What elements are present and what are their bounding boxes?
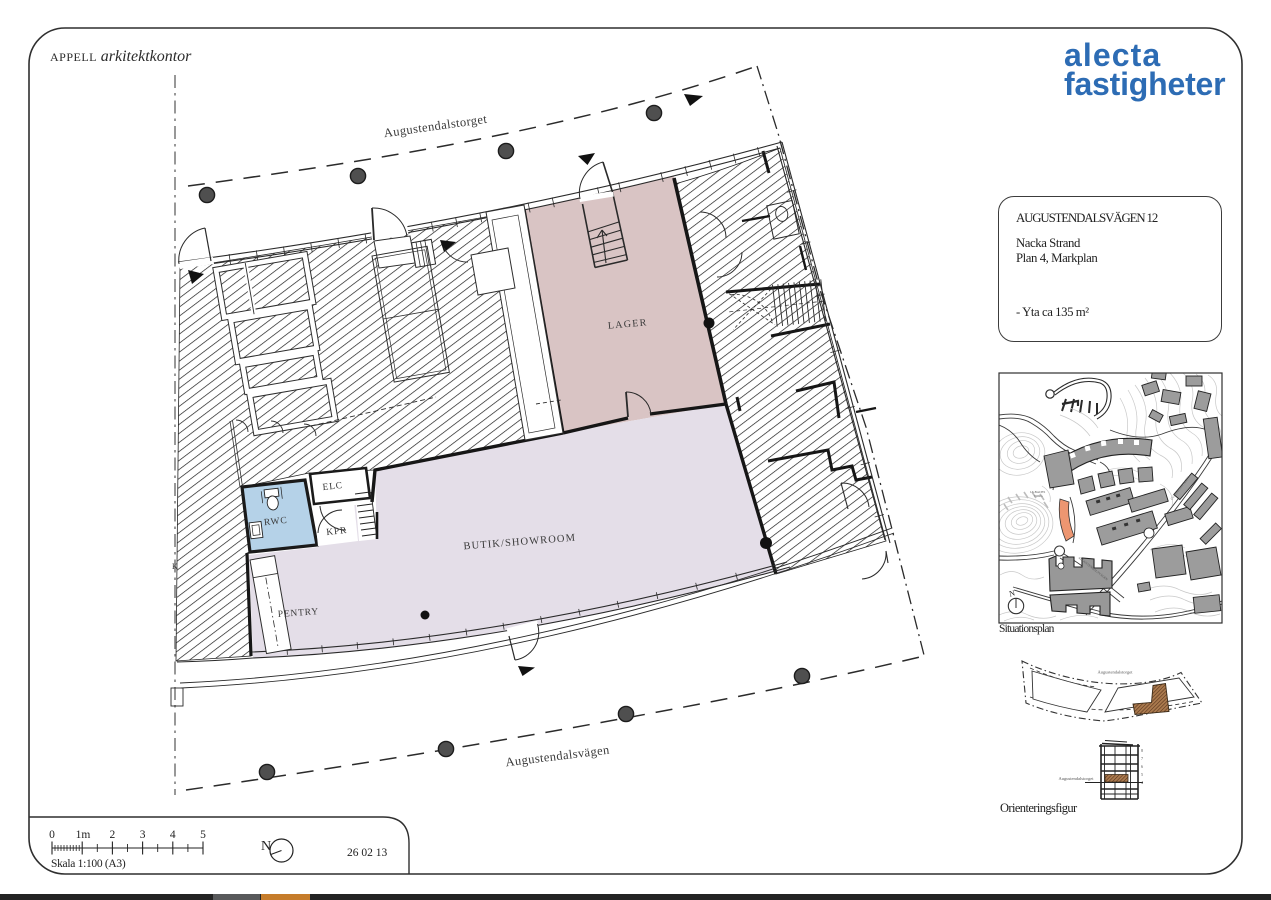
svg-text:4: 4 [170, 829, 176, 841]
svg-text:8: 8 [1141, 748, 1143, 753]
svg-text:6: 6 [1141, 764, 1143, 769]
svg-text:0: 0 [49, 829, 55, 841]
svg-text:3: 3 [140, 829, 146, 841]
svg-text:ELC: ELC [322, 481, 343, 493]
svg-text:2: 2 [110, 829, 116, 841]
svg-text:Augustendalstorget: Augustendalstorget [1059, 776, 1095, 781]
svg-text:Augustendalstorget: Augustendalstorget [1098, 670, 1134, 675]
svg-text:Augustendalsvägen: Augustendalsvägen [505, 743, 611, 770]
svg-text:7: 7 [1141, 756, 1143, 761]
svg-text:5: 5 [1141, 772, 1143, 777]
svg-text:K: K [172, 562, 178, 571]
svg-text:Augustendalstorget: Augustendalstorget [383, 112, 488, 140]
svg-text:1m: 1m [76, 829, 91, 841]
svg-text:5: 5 [200, 829, 206, 841]
svg-text:4: 4 [1141, 780, 1144, 785]
svg-text:TORG: TORG [1034, 494, 1043, 498]
